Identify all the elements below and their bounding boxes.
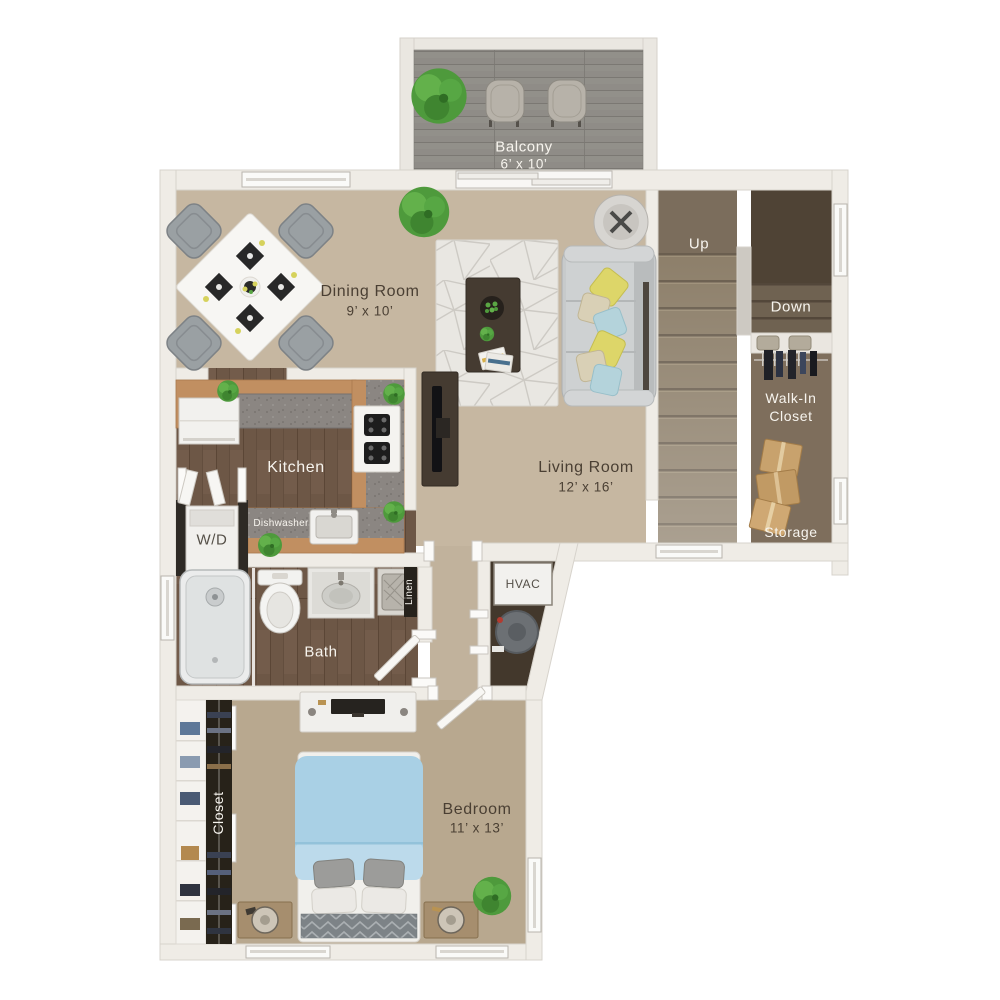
window bbox=[242, 172, 350, 187]
console-table bbox=[643, 282, 649, 390]
vanity-sink bbox=[308, 568, 374, 618]
balcony-plant bbox=[411, 68, 466, 123]
window bbox=[246, 946, 330, 958]
linen-closet bbox=[378, 567, 417, 617]
sliding-door bbox=[456, 171, 612, 188]
wall-left bbox=[160, 170, 176, 960]
window bbox=[834, 204, 847, 276]
balcony-chair bbox=[486, 80, 524, 127]
wall-kitchen-right bbox=[404, 368, 416, 510]
bathtub bbox=[180, 570, 250, 684]
stairwell-down bbox=[751, 190, 832, 283]
bedroom-plant bbox=[473, 877, 511, 915]
side-table bbox=[594, 195, 648, 249]
headboard bbox=[301, 914, 417, 938]
counter-plant bbox=[383, 501, 405, 523]
nightstand bbox=[424, 902, 478, 938]
dining-plant bbox=[399, 187, 449, 237]
stove bbox=[354, 406, 400, 472]
window bbox=[834, 478, 847, 524]
window bbox=[656, 545, 722, 558]
tv-console bbox=[422, 372, 458, 486]
counter-plant bbox=[258, 533, 282, 557]
bed bbox=[295, 752, 423, 942]
balcony-chair bbox=[548, 80, 586, 127]
centerpiece bbox=[240, 277, 260, 297]
stairs-down bbox=[751, 283, 832, 335]
stair-landing bbox=[658, 190, 737, 253]
hall-floor bbox=[430, 546, 478, 700]
counter-plant bbox=[383, 383, 405, 405]
nightstand bbox=[238, 902, 292, 938]
dining-set bbox=[163, 200, 337, 374]
hvac-unit bbox=[494, 563, 552, 605]
tv bbox=[331, 699, 385, 714]
kitchen-sink bbox=[310, 508, 358, 544]
balcony bbox=[400, 38, 657, 190]
window bbox=[161, 576, 174, 640]
water-heater bbox=[492, 611, 538, 653]
coffee-table bbox=[466, 278, 520, 373]
bedroom-closet bbox=[176, 700, 232, 944]
basket bbox=[757, 336, 779, 350]
wall-hvac-left bbox=[478, 561, 490, 700]
dresser bbox=[300, 692, 416, 732]
basket bbox=[789, 336, 811, 350]
shower-curtain bbox=[252, 568, 255, 686]
sofa bbox=[562, 246, 656, 406]
floor-plan: Balcony 6’ x 10’ Dining Room 9’ x 10’ Ki… bbox=[0, 0, 1000, 1000]
toilet bbox=[258, 570, 302, 633]
refrigerator bbox=[179, 398, 239, 444]
countertop bbox=[238, 394, 356, 428]
window bbox=[436, 946, 508, 958]
window bbox=[528, 858, 541, 932]
stair-divider bbox=[737, 247, 751, 335]
floor-plan-drawing bbox=[0, 0, 1000, 1000]
counter-plant bbox=[217, 380, 239, 402]
